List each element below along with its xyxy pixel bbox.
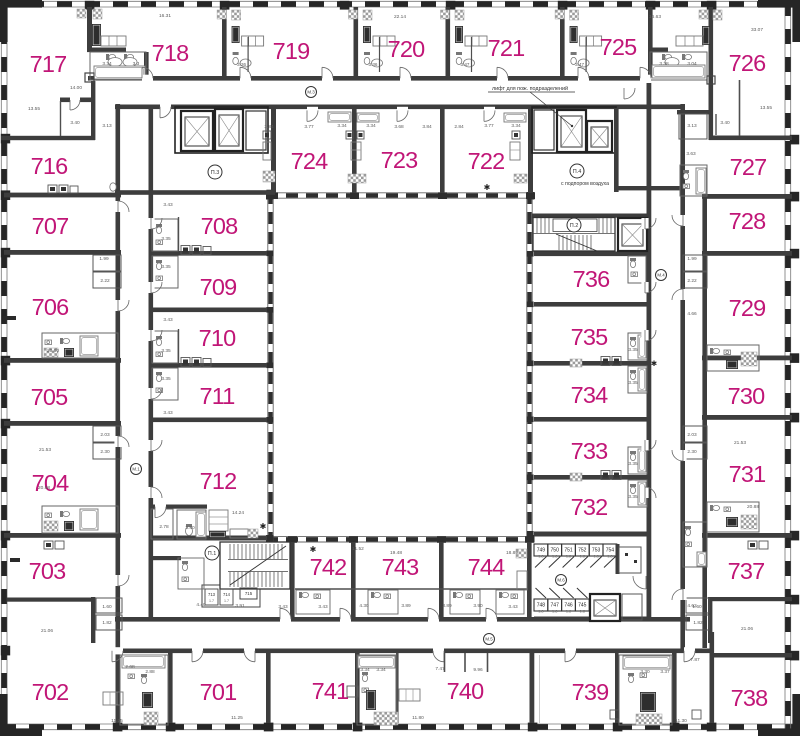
svg-text:33.07: 33.07 [751, 27, 763, 33]
svg-text:721: 721 [488, 35, 525, 61]
svg-text:19.48: 19.48 [390, 550, 402, 556]
svg-text:4.30: 4.30 [359, 603, 369, 609]
svg-text:9.96: 9.96 [473, 667, 483, 673]
svg-text:3.40: 3.40 [720, 120, 730, 126]
svg-text:3.47: 3.47 [575, 62, 584, 67]
svg-text:4.66: 4.66 [687, 311, 697, 317]
svg-text:1.7: 1.7 [224, 599, 229, 603]
svg-text:725: 725 [600, 34, 638, 60]
svg-text:1.8: 1.8 [580, 555, 585, 559]
svg-text:П.2: П.2 [570, 223, 579, 229]
svg-text:707: 707 [32, 213, 69, 239]
svg-text:13.55: 13.55 [760, 105, 772, 111]
svg-text:14.00: 14.00 [70, 85, 82, 91]
svg-text:4.62: 4.62 [687, 603, 697, 609]
svg-text:1.60: 1.60 [102, 604, 112, 610]
svg-text:710: 710 [199, 325, 237, 351]
svg-text:3.34: 3.34 [511, 123, 521, 129]
svg-text:729: 729 [729, 295, 766, 321]
svg-text:16.31: 16.31 [159, 13, 171, 19]
svg-text:1.99: 1.99 [99, 256, 109, 262]
svg-text:11.25: 11.25 [111, 718, 123, 724]
svg-text:21.06: 21.06 [741, 626, 753, 632]
svg-text:723: 723 [381, 147, 419, 173]
svg-text:16.63: 16.63 [649, 14, 661, 20]
svg-text:3.34: 3.34 [366, 123, 376, 129]
svg-text:3.84: 3.84 [422, 124, 432, 130]
svg-text:3.36: 3.36 [237, 62, 246, 67]
svg-text:2.78: 2.78 [159, 524, 169, 530]
svg-text:1.8: 1.8 [607, 555, 612, 559]
svg-text:20.88: 20.88 [38, 485, 50, 491]
svg-text:722: 722 [468, 148, 505, 174]
svg-text:3.34: 3.34 [360, 667, 370, 673]
svg-text:717: 717 [30, 51, 67, 77]
svg-text:753: 753 [592, 548, 601, 554]
svg-text:745: 745 [578, 603, 587, 609]
svg-text:✱: ✱ [260, 522, 267, 531]
svg-text:11.25: 11.25 [231, 715, 243, 721]
svg-text:732: 732 [571, 494, 608, 520]
svg-text:3.80: 3.80 [185, 525, 195, 531]
svg-text:705: 705 [31, 384, 69, 410]
svg-text:2.30: 2.30 [100, 449, 110, 455]
svg-text:701: 701 [200, 679, 237, 705]
svg-text:711: 711 [199, 383, 234, 409]
svg-text:М.3: М.3 [307, 90, 315, 95]
svg-text:736: 736 [573, 266, 611, 292]
svg-text:748: 748 [537, 603, 546, 609]
svg-text:3.35: 3.35 [161, 236, 171, 242]
svg-text:22.14: 22.14 [394, 14, 406, 20]
svg-text:лифт для пож. подразделений: лифт для пож. подразделений [492, 85, 568, 92]
svg-text:П.1: П.1 [208, 551, 217, 557]
svg-text:2.22: 2.22 [687, 278, 697, 284]
svg-text:2.30: 2.30 [687, 449, 697, 455]
svg-text:✱: ✱ [310, 545, 317, 554]
svg-text:3.13: 3.13 [687, 123, 697, 129]
svg-text:3.34: 3.34 [337, 123, 347, 129]
svg-text:3.37: 3.37 [660, 669, 670, 675]
svg-text:735: 735 [571, 324, 609, 350]
svg-text:1.8: 1.8 [566, 555, 571, 559]
svg-text:740: 740 [447, 678, 485, 704]
svg-text:2.88: 2.88 [145, 669, 155, 675]
svg-text:713: 713 [208, 592, 216, 597]
svg-text:714: 714 [223, 592, 231, 597]
svg-text:3.43: 3.43 [278, 604, 288, 610]
svg-text:752: 752 [578, 548, 587, 554]
svg-text:1.8: 1.8 [552, 610, 557, 614]
svg-text:749: 749 [537, 548, 546, 554]
svg-text:с подпором воздуха: с подпором воздуха [561, 181, 609, 187]
svg-text:3.43: 3.43 [163, 317, 173, 323]
svg-text:20.88: 20.88 [747, 504, 759, 510]
svg-text:1.8: 1.8 [580, 610, 585, 614]
svg-text:3.13: 3.13 [102, 123, 112, 129]
svg-text:4.40: 4.40 [196, 602, 206, 608]
svg-text:3.91: 3.91 [235, 603, 245, 609]
svg-text:719: 719 [273, 38, 310, 64]
svg-text:1.82: 1.82 [102, 620, 112, 626]
svg-text:✱: ✱ [651, 359, 658, 368]
svg-text:3.84: 3.84 [264, 124, 274, 130]
svg-text:21.06: 21.06 [41, 628, 53, 634]
svg-text:716: 716 [31, 153, 69, 179]
svg-text:742: 742 [310, 554, 347, 580]
svg-text:739: 739 [572, 679, 609, 705]
svg-text:3.04: 3.04 [687, 61, 697, 67]
svg-text:1.8: 1.8 [552, 555, 557, 559]
svg-text:20.60: 20.60 [47, 348, 59, 354]
svg-text:11.52: 11.52 [352, 546, 364, 552]
svg-text:2.68: 2.68 [125, 664, 135, 670]
svg-text:21.53: 21.53 [39, 447, 51, 453]
svg-text:3.43: 3.43 [163, 410, 173, 416]
svg-text:1.82: 1.82 [693, 620, 703, 626]
svg-text:751: 751 [564, 548, 573, 554]
svg-text:715: 715 [245, 591, 253, 596]
svg-text:3.90: 3.90 [473, 603, 483, 609]
svg-text:3.36: 3.36 [369, 62, 378, 67]
svg-text:3.43: 3.43 [318, 604, 328, 610]
svg-text:3.68: 3.68 [394, 124, 404, 130]
svg-text:720: 720 [388, 36, 426, 62]
svg-text:3.77: 3.77 [304, 124, 314, 130]
svg-text:М.6: М.6 [557, 578, 565, 583]
svg-text:728: 728 [729, 208, 767, 234]
svg-text:3.35: 3.35 [628, 380, 638, 386]
svg-text:3.35: 3.35 [161, 264, 171, 270]
svg-text:754: 754 [606, 548, 615, 554]
svg-text:704: 704 [32, 470, 70, 496]
svg-text:3.35: 3.35 [628, 461, 638, 467]
svg-text:750: 750 [551, 548, 560, 554]
svg-text:718: 718 [152, 40, 190, 66]
svg-text:П.4: П.4 [573, 169, 582, 175]
svg-text:3.3: 3.3 [133, 61, 140, 67]
svg-text:702: 702 [32, 679, 69, 705]
svg-text:1.99: 1.99 [687, 256, 697, 262]
svg-text:731: 731 [729, 461, 766, 487]
svg-text:3.43: 3.43 [508, 604, 518, 610]
svg-text:708: 708 [201, 213, 239, 239]
svg-text:18.89: 18.89 [506, 550, 518, 556]
svg-text:3.89: 3.89 [442, 603, 452, 609]
svg-text:11.80: 11.80 [412, 715, 424, 721]
svg-text:7.47: 7.47 [435, 666, 445, 672]
svg-text:3.35: 3.35 [628, 494, 638, 500]
svg-text:2.03: 2.03 [100, 432, 110, 438]
svg-text:М.4: М.4 [657, 273, 665, 278]
svg-text:3.77: 3.77 [484, 123, 494, 129]
svg-text:3.35: 3.35 [161, 376, 171, 382]
svg-text:709: 709 [200, 274, 237, 300]
svg-text:3.89: 3.89 [401, 603, 411, 609]
svg-text:3.43: 3.43 [163, 202, 173, 208]
svg-text:✱: ✱ [484, 183, 491, 192]
svg-text:1.8: 1.8 [538, 555, 543, 559]
svg-text:1.8: 1.8 [593, 555, 598, 559]
svg-text:733: 733 [571, 438, 609, 464]
svg-text:11.30: 11.30 [675, 718, 687, 724]
svg-text:726: 726 [729, 50, 767, 76]
svg-text:1.8: 1.8 [566, 610, 571, 614]
svg-text:1.8: 1.8 [538, 610, 543, 614]
svg-text:3.38: 3.38 [659, 61, 669, 67]
svg-text:727: 727 [730, 154, 767, 180]
svg-text:3.63: 3.63 [686, 151, 696, 157]
svg-text:744: 744 [468, 554, 506, 580]
svg-text:738: 738 [731, 685, 769, 711]
svg-text:3.40: 3.40 [70, 120, 80, 126]
svg-text:3.35: 3.35 [161, 348, 171, 354]
svg-text:724: 724 [291, 148, 329, 174]
svg-text:1.7: 1.7 [209, 599, 214, 603]
svg-text:730: 730 [728, 383, 766, 409]
svg-text:706: 706 [32, 294, 70, 320]
svg-text:21.53: 21.53 [734, 440, 746, 446]
svg-text:746: 746 [564, 603, 573, 609]
svg-text:741: 741 [312, 678, 349, 704]
svg-text:3.30: 3.30 [640, 669, 650, 675]
svg-text:712: 712 [200, 468, 237, 494]
svg-text:3.47: 3.47 [461, 62, 470, 67]
svg-text:2.84: 2.84 [454, 124, 464, 130]
svg-text:3.35: 3.35 [628, 347, 638, 353]
svg-text:743: 743 [382, 554, 420, 580]
svg-text:747: 747 [551, 603, 560, 609]
svg-text:14.24: 14.24 [232, 510, 244, 516]
svg-text:М.1: М.1 [132, 467, 140, 472]
svg-text:3.34: 3.34 [376, 667, 386, 673]
svg-text:2.03: 2.03 [687, 432, 697, 438]
svg-text:М.5: М.5 [485, 637, 493, 642]
svg-text:3.34: 3.34 [102, 61, 112, 67]
svg-text:7.87: 7.87 [690, 657, 700, 663]
svg-text:703: 703 [29, 558, 67, 584]
svg-text:737: 737 [728, 558, 765, 584]
svg-text:П.3: П.3 [211, 170, 220, 176]
svg-text:2.22: 2.22 [100, 278, 110, 284]
svg-text:13.55: 13.55 [28, 106, 40, 112]
svg-text:734: 734 [571, 382, 609, 408]
